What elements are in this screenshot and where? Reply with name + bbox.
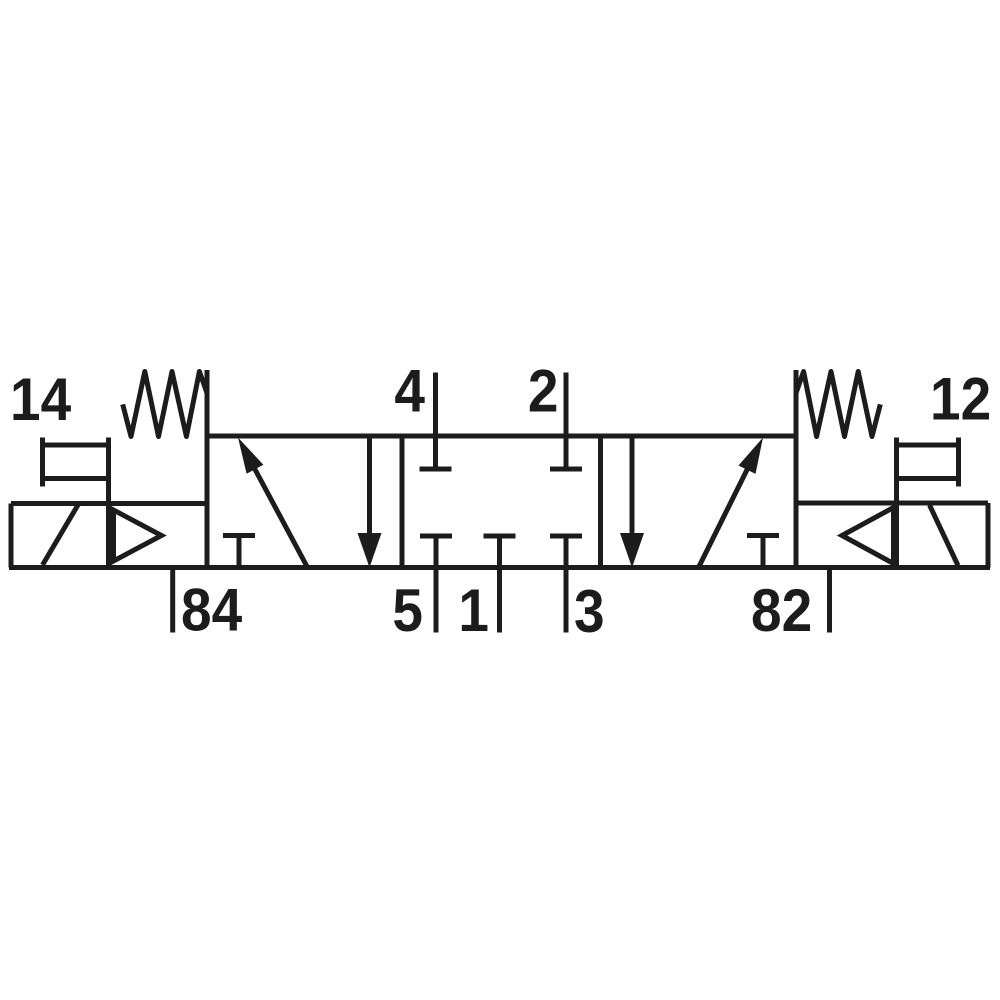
svg-text:14: 14 [10,367,71,434]
svg-text:12: 12 [930,366,991,433]
svg-text:5: 5 [392,578,423,645]
svg-text:2: 2 [528,358,559,425]
svg-text:1: 1 [458,578,489,645]
svg-text:3: 3 [574,579,605,646]
svg-text:4: 4 [394,358,425,425]
svg-text:82: 82 [751,578,812,645]
svg-text:84: 84 [181,577,242,644]
